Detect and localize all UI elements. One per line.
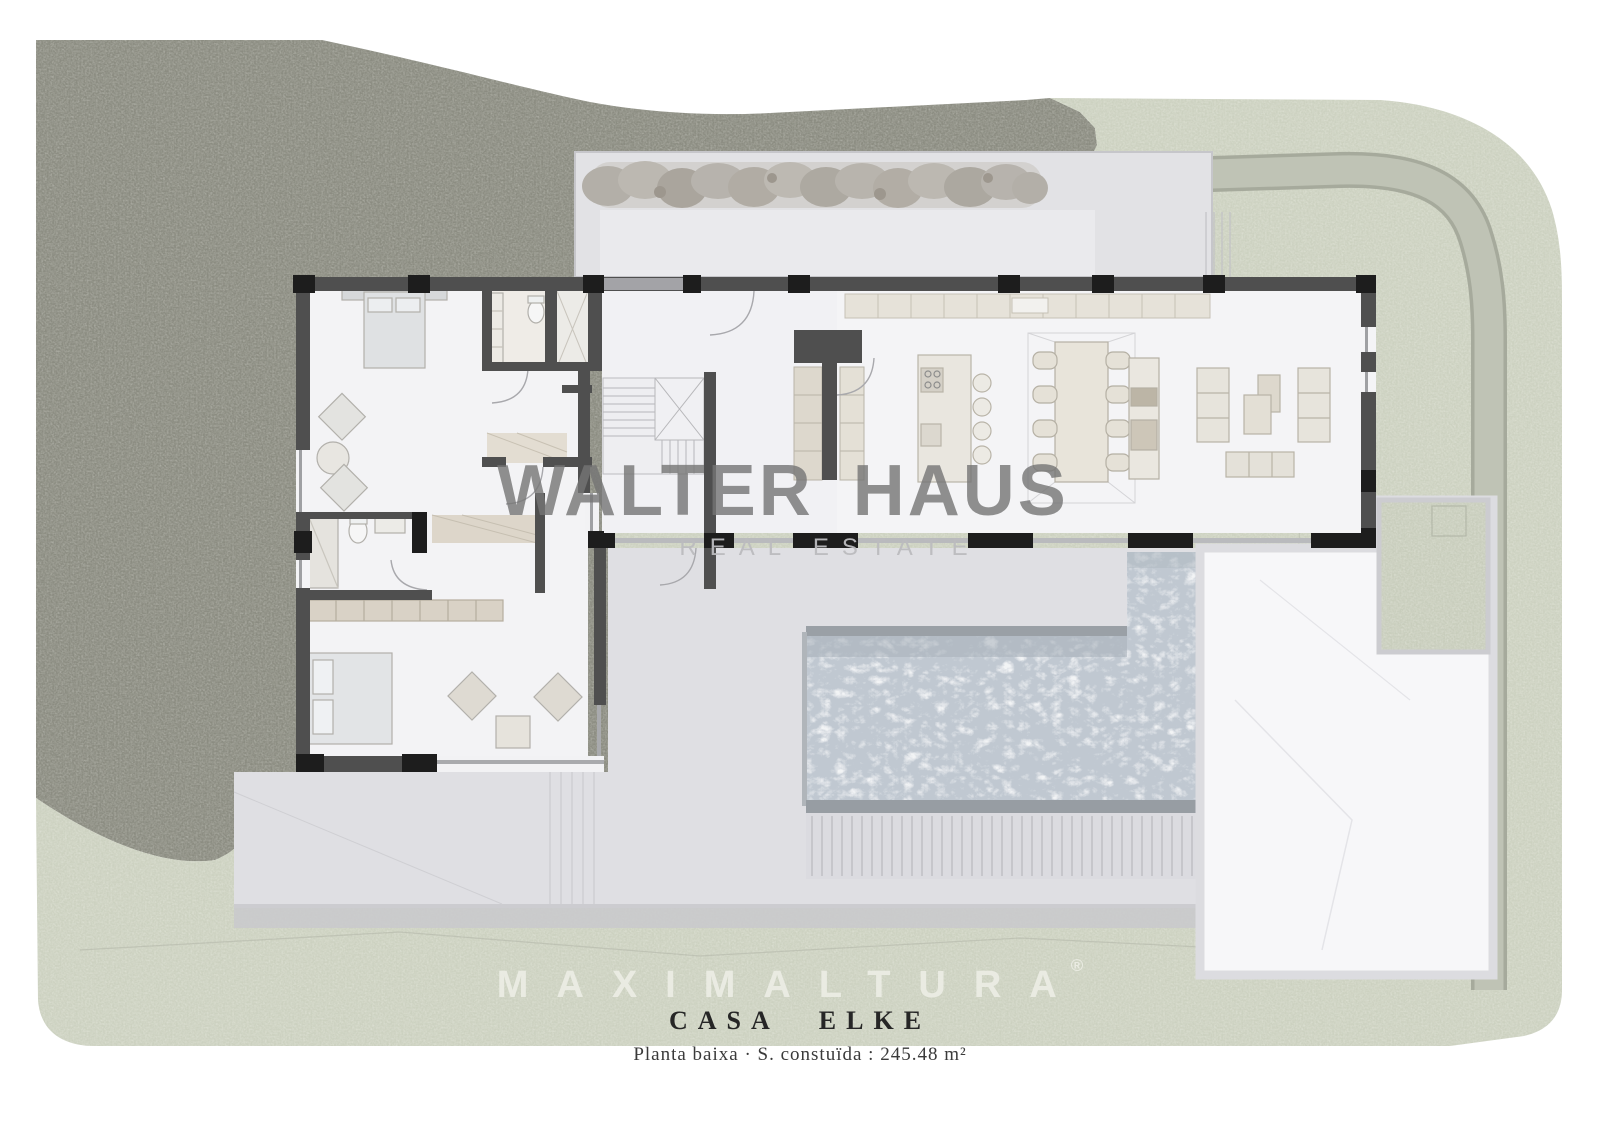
watermark-walter-haus: WALTER HAUS	[497, 450, 1069, 532]
kitchen-counter	[845, 294, 1210, 318]
patio-garden-inset	[1379, 500, 1488, 652]
pool-deck-steps	[806, 813, 1196, 879]
site-plan-page: WALTER HAUS REAL ESTATE MAXIMALTURA® CAS…	[0, 0, 1600, 1128]
registered-trademark-symbol: ®	[1071, 956, 1084, 975]
watermark-real-estate: REAL ESTATE	[679, 534, 980, 562]
plan-title: CASA ELKE	[669, 1006, 931, 1036]
sideboard	[1129, 358, 1159, 479]
watermark-maximaltura: MAXIMALTURA®	[497, 956, 1084, 1007]
hedge-row	[582, 161, 1048, 208]
watermark-maximaltura-text: MAXIMALTURA	[497, 964, 1085, 1006]
plan-subtitle: Planta baixa · S. constuïda : 245.48 m²	[633, 1044, 966, 1066]
